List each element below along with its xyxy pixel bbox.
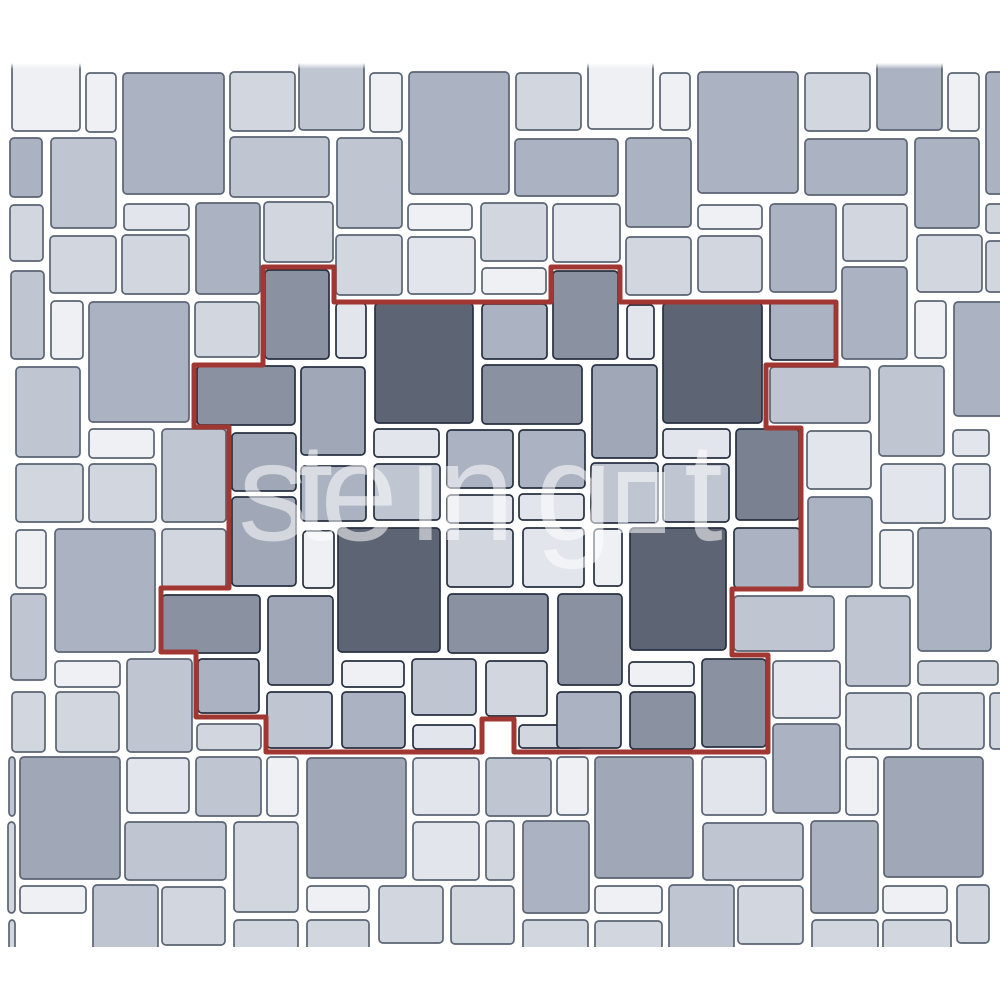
svg-text:t: t — [684, 413, 723, 570]
svg-text:g: g — [535, 413, 613, 570]
svg-text:ste: ste — [238, 413, 398, 570]
svg-text:n: n — [437, 413, 515, 570]
